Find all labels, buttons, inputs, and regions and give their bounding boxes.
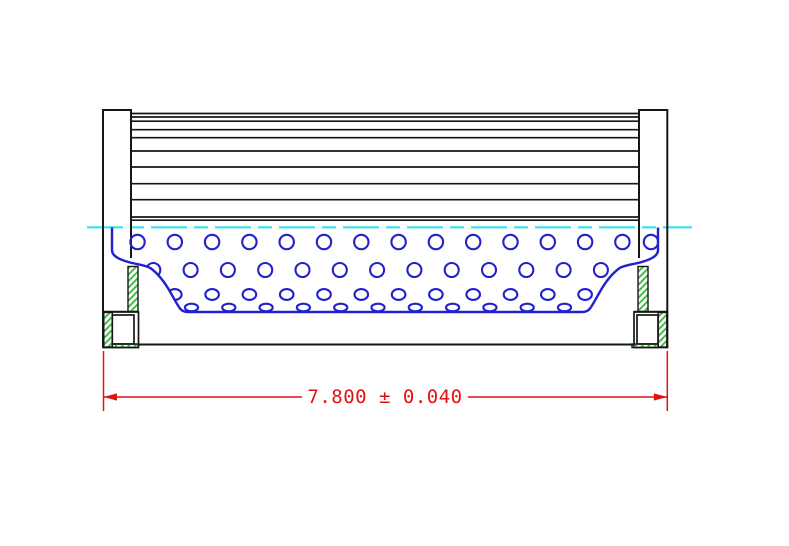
hatch-area (128, 267, 138, 312)
drawing-background (0, 0, 789, 546)
hatch-area (632, 344, 658, 348)
hatch-area (658, 313, 667, 348)
technical-drawing-page: 7.800 ± 0.040 (0, 0, 789, 546)
hatch-area (638, 267, 648, 312)
filter-element-cross-section: 7.800 ± 0.040 (0, 0, 789, 546)
hatch-area (104, 313, 113, 348)
dimension-text: 7.800 ± 0.040 (307, 386, 462, 408)
hatch-area (112, 344, 138, 348)
